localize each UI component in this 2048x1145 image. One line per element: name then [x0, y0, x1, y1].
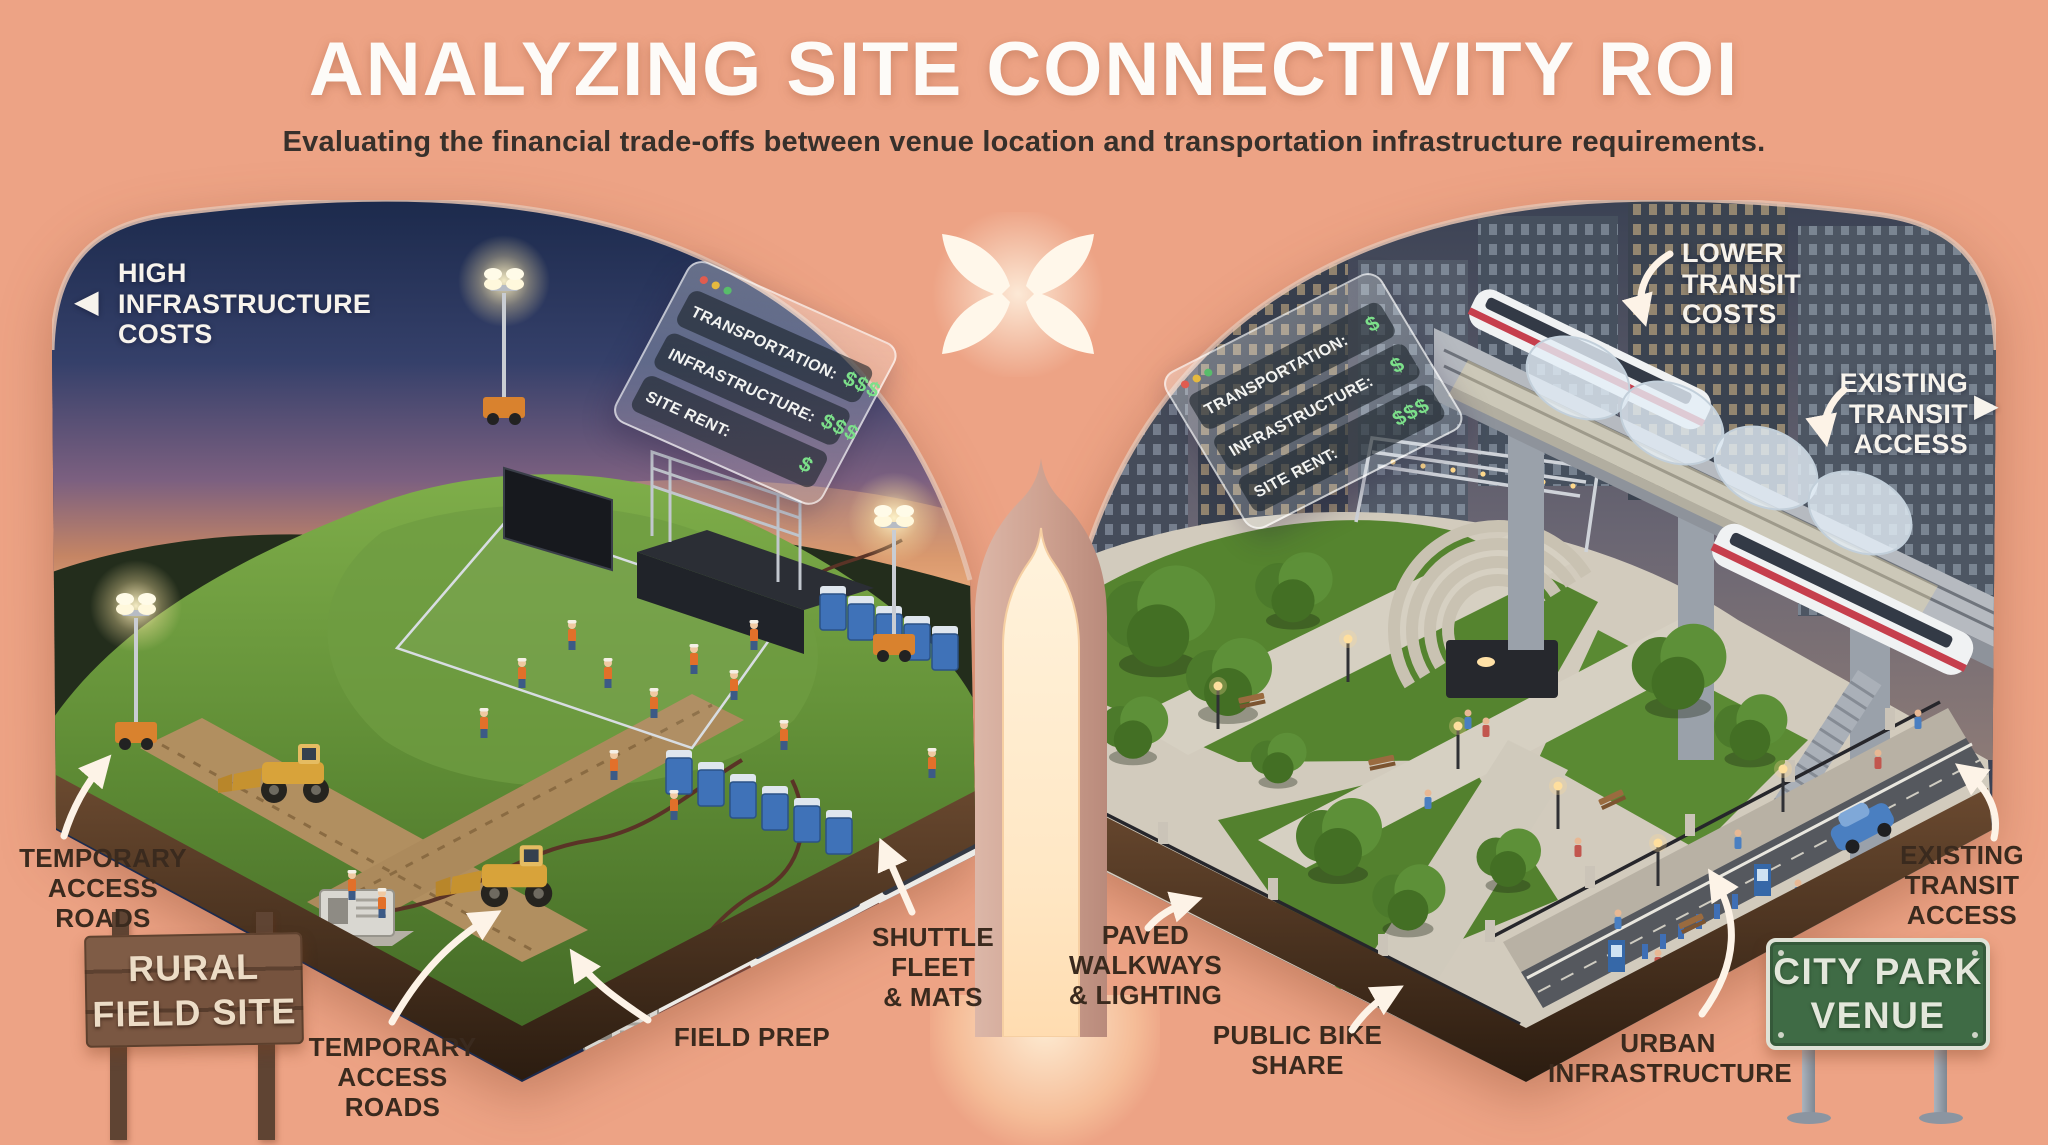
label-line: & MATS: [838, 982, 1028, 1012]
window-dot-green-icon: [722, 285, 733, 295]
label-line: SHARE: [1210, 1050, 1385, 1080]
sign-line: VENUE: [1811, 994, 1946, 1038]
metal-sign-base: [1787, 1112, 1831, 1124]
label-urban-infrastructure: URBAN INFRASTRUCTURE: [1548, 1028, 1788, 1088]
sign-line: CITY PARK: [1773, 950, 1982, 994]
label-line: PUBLIC BIKE: [1210, 1020, 1385, 1050]
label-public-bike-share: PUBLIC BIKE SHARE: [1210, 1020, 1385, 1080]
callout-line: COSTS: [1682, 299, 1801, 330]
callout-line: ACCESS: [1830, 429, 1968, 460]
arrow-left-icon: ◀: [74, 282, 99, 320]
callout-line: COSTS: [118, 319, 371, 350]
infographic-canvas: ANALYZING SITE CONNECTIVITY ROI Evaluati…: [0, 0, 2048, 1143]
label-line: FIELD PREP: [672, 1022, 832, 1052]
callout-line: INFRASTRUCTURE: [118, 289, 371, 320]
city-park-venue-sign: CITY PARK VENUE: [1766, 938, 1990, 1050]
label-existing-transit-access-bottom: EXISTING TRANSIT ACCESS: [1882, 840, 2042, 930]
arrow-right-icon: ▶: [1974, 386, 1999, 424]
window-dot-yellow-icon: [710, 280, 721, 290]
metal-sign-leg: [1802, 1042, 1815, 1118]
callout-high-infrastructure-costs: HIGH INFRASTRUCTURE COSTS: [118, 258, 371, 350]
label-line: EXISTING: [1882, 840, 2042, 870]
callout-line: LOWER: [1682, 238, 1801, 269]
label-line: TRANSIT: [1882, 870, 2042, 900]
label-line: PAVED: [1058, 920, 1233, 950]
sign-line: RURAL: [128, 944, 260, 991]
label-line: INFRASTRUCTURE: [1548, 1058, 1788, 1088]
label-line: ACCESS: [1882, 900, 2042, 930]
window-dot-green-icon: [1203, 367, 1214, 378]
metal-sign-base: [1919, 1112, 1963, 1124]
label-line: TEMPORARY: [8, 843, 198, 873]
wood-sign-leg: [110, 1040, 127, 1140]
cost-value: $: [1386, 352, 1410, 378]
label-shuttle-fleet-mats: SHUTTLE FLEET & MATS: [838, 922, 1028, 1012]
cost-value: $: [1361, 311, 1385, 337]
window-dot-red-icon: [1179, 379, 1190, 390]
callout-line: TRANSIT: [1682, 269, 1801, 300]
sign-line: FIELD SITE: [92, 988, 297, 1037]
callout-existing-transit-access: EXISTING TRANSIT ACCESS: [1830, 368, 1968, 460]
label-paved-walkways-lighting: PAVED WALKWAYS & LIGHTING: [1058, 920, 1233, 1010]
rural-field-site-sign: RURAL FIELD SITE: [84, 932, 304, 1048]
callout-line: HIGH: [118, 258, 371, 289]
label-temporary-access-roads-left: TEMPORARY ACCESS ROADS: [8, 843, 198, 933]
label-line: & LIGHTING: [1058, 980, 1233, 1010]
label-line: URBAN: [1548, 1028, 1788, 1058]
callout-line: EXISTING: [1830, 368, 1968, 399]
wood-sign-leg: [258, 1040, 275, 1140]
label-temporary-access-roads-center: TEMPORARY ACCESS ROADS: [295, 1032, 490, 1122]
page-subtitle: Evaluating the financial trade-offs betw…: [0, 126, 2048, 159]
page-title: ANALYZING SITE CONNECTIVITY ROI: [0, 26, 2048, 113]
window-dot-red-icon: [698, 275, 709, 285]
label-field-prep: FIELD PREP: [672, 1022, 832, 1052]
butterfly-icon: [928, 212, 1108, 377]
label-line: ACCESS ROADS: [8, 873, 198, 933]
callout-line: TRANSIT: [1830, 399, 1968, 430]
cost-value: $$$: [1388, 394, 1434, 432]
callout-lower-transit-costs: LOWER TRANSIT COSTS: [1682, 238, 1801, 330]
label-line: ACCESS ROADS: [295, 1062, 490, 1122]
label-line: WALKWAYS: [1058, 950, 1233, 980]
metal-sign-leg: [1934, 1042, 1947, 1118]
label-line: SHUTTLE FLEET: [838, 922, 1028, 982]
cost-value: $: [794, 452, 817, 478]
label-line: TEMPORARY: [295, 1032, 490, 1062]
window-dot-yellow-icon: [1191, 373, 1202, 384]
